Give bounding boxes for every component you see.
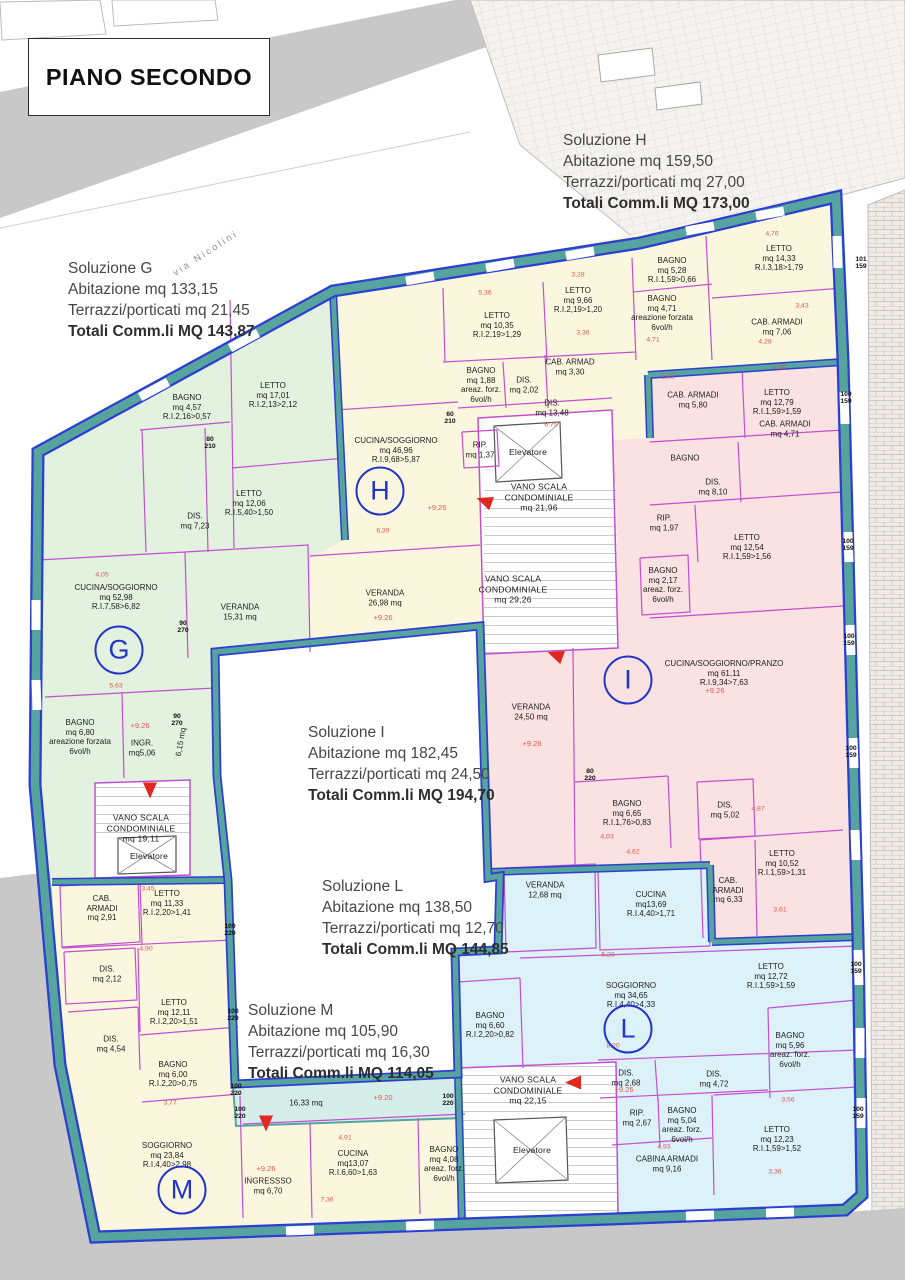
room-label: BAGNOmq 5,96areaz. forz.6vol/h <box>770 1031 810 1069</box>
dimension-label: 4,05 <box>95 572 108 579</box>
room-label: VERANDA26,98 mq <box>366 589 405 608</box>
dimension-label: 3,43 <box>795 303 808 310</box>
room-label: CUCINAmq13,69R.I.4,40>1,71 <box>627 890 675 919</box>
opening-size-label: 100220 <box>230 1083 241 1097</box>
level-marker: +9.26 <box>706 687 725 695</box>
opening-size-label: 90270 <box>177 620 188 634</box>
apartment-badge: I <box>604 656 653 705</box>
room-label: CAB. ARMADImq 4,71 <box>759 420 811 439</box>
floor-plan-page: BAGNOmq 4,57R.I.2,16>0,57LETTOmq 17,01R.… <box>0 0 905 1280</box>
room-label: LETTOmq 11,33R.I.2,20>1,41 <box>143 889 191 918</box>
dimension-label: 3,45 <box>141 886 154 893</box>
room-label: BAGNO <box>671 453 700 463</box>
solution-summary: Soluzione LAbitazione mq 138,50Terrazzi/… <box>322 876 509 960</box>
level-marker: +9.26 <box>428 504 447 512</box>
stair-label: Elevatore <box>509 447 547 458</box>
level-marker: +9.26 <box>257 1165 276 1173</box>
opening-size-label: 101159 <box>855 256 866 270</box>
room-label: LETTOmq 12,72R.I.1,59>1,59 <box>747 962 795 991</box>
room-label: LETTOmq 14,33R.I.3,18>1,79 <box>755 244 803 273</box>
stair-label: Elevatore <box>513 1145 551 1156</box>
dimension-label: 3,61 <box>773 907 786 914</box>
room-label: BAGNOmq 6,60R.I.2,20>0,82 <box>466 1011 514 1040</box>
level-marker: +9.26 <box>615 1086 634 1094</box>
opening-size-label: 100220 <box>224 923 235 937</box>
label-layer: BAGNOmq 4,57R.I.2,16>0,57LETTOmq 17,01R.… <box>0 0 905 1280</box>
dimension-label: 4,62 <box>626 849 639 856</box>
room-label: CAB.ARMADImq 2,91 <box>86 894 117 923</box>
room-label: BAGNOmq 2,17areaz. forz.6vol/h <box>643 566 683 604</box>
plan-title: PIANO SECONDO <box>28 38 270 116</box>
solution-summary: Soluzione MAbitazione mq 105,90Terrazzi/… <box>248 1000 434 1084</box>
room-label: CUCINAmq13,07R.I.6,60>1,63 <box>329 1149 377 1178</box>
dimension-label: 4,16 <box>772 365 785 372</box>
opening-size-label: 80210 <box>204 436 215 450</box>
room-label: BAGNOmq 5,28R.I.1,59>0,66 <box>648 256 696 285</box>
dimension-label: 6,39 <box>376 528 389 535</box>
opening-size-label: 100159 <box>842 538 853 552</box>
room-label: CAB. ARMADImq 5,80 <box>667 391 719 410</box>
apartment-badge: L <box>604 1005 653 1054</box>
room-label: BAGNOmq 1,88areaz. forz.6vol/h <box>461 366 501 404</box>
dimension-label: 5,63 <box>109 683 122 690</box>
room-label: BAGNOmq 4,57R.I.2,16>0,57 <box>163 393 211 422</box>
room-label: RIP.mq 2,67 <box>623 1109 652 1128</box>
stair-label: VANO SCALACONDOMINIALEmq 29,26 <box>479 573 548 605</box>
room-label: CAB.ARMADImq 6,33 <box>712 876 743 905</box>
dimension-label: 3,28 <box>571 272 584 279</box>
plan-title-text: PIANO SECONDO <box>46 64 252 91</box>
entrance-arrow-icon <box>139 778 161 805</box>
apartment-badge: G <box>95 626 144 675</box>
opening-size-label: 100159 <box>850 961 861 975</box>
room-label: DIS.mq 7,23 <box>181 512 210 531</box>
stair-label: Elevatore <box>130 851 168 862</box>
room-label: VERANDA12,68 mq <box>526 881 565 900</box>
room-label: BAGNOmq 6,65R.I.1,76>0,83 <box>603 799 651 828</box>
room-label: CUCINA/SOGGIORNOmq 52,98R.I.7,58>6,82 <box>74 583 157 612</box>
dimension-label: 7,36 <box>320 1197 333 1204</box>
dimension-label: 4,76 <box>765 231 778 238</box>
dimension-label: 3,36 <box>576 330 589 337</box>
stair-label: VANO SCALACONDOMINIALEmq 22,15 <box>494 1074 563 1106</box>
dimension-label: 6,75 <box>544 422 557 429</box>
dimension-label: 4,87 <box>751 806 764 813</box>
dimension-label: 4,03 <box>600 834 613 841</box>
room-label: BAGNOmq 5,04areaz. forz.6vol/h <box>662 1106 702 1144</box>
room-label: CUCINA/SOGGIORNOmq 46,96R.I.9,68>5,87 <box>354 436 437 465</box>
opening-size-label: 90270 <box>171 713 182 727</box>
dimension-label: 4,93 <box>657 1144 670 1151</box>
room-label: BAGNOmq 6,80areazione forzata6vol/h <box>49 718 111 756</box>
solution-summary: Soluzione HAbitazione mq 159,50Terrazzi/… <box>563 130 750 214</box>
opening-size-label: 100159 <box>840 391 851 405</box>
room-label: RIP.mq 1,37 <box>466 441 495 460</box>
opening-size-label: 100159 <box>843 633 854 647</box>
room-label: DIS.mq 4,72 <box>700 1070 729 1089</box>
room-label: CAB. ARMADmq 3,30 <box>545 358 594 377</box>
level-marker: +9.26 <box>374 614 393 622</box>
stair-label: VANO SCALACONDOMINIALEmq 19,11 <box>107 812 176 844</box>
room-label: CAB. ARMADImq 7,06 <box>751 318 803 337</box>
dimension-label: 3,56 <box>781 1097 794 1104</box>
opening-size-label: 100159 <box>845 745 856 759</box>
room-label: LETTOmq 9,66R.I.2,19>1,20 <box>554 286 602 315</box>
dimension-label: 2,63 <box>661 374 674 381</box>
room-label: 16,33 mq <box>289 1098 322 1108</box>
dimension-label: 5,36 <box>478 290 491 297</box>
apartment-badge: M <box>158 1166 207 1215</box>
dimension-label: 4,91 <box>338 1135 351 1142</box>
room-label: RIP.mq 1,97 <box>650 514 679 533</box>
dimension-label: 5,23 <box>601 952 614 959</box>
level-marker: +9.26 <box>131 722 150 730</box>
opening-size-label: 60210 <box>444 411 455 425</box>
opening-size-label: 100220 <box>442 1093 453 1107</box>
room-label: LETTOmq 12,79R.I.1,59>1,59 <box>753 388 801 417</box>
room-label: INGR.mq5,06 <box>129 739 156 758</box>
level-marker: +9.26 <box>523 740 542 748</box>
entrance-arrow-icon <box>255 1111 277 1138</box>
room-label: VERANDA15,31 mq <box>221 603 260 622</box>
entrance-arrow-icon <box>475 491 497 518</box>
room-label: DIS.mq 4,54 <box>97 1035 126 1054</box>
dimension-label: 4,90 <box>139 946 152 953</box>
room-label: DIS.mq 5,02 <box>711 801 740 820</box>
dimension-label: 4,28 <box>758 339 771 346</box>
level-marker: +9.20 <box>374 1094 393 1102</box>
apartment-badge: H <box>356 467 405 516</box>
room-label: LETTOmq 12,23R.I.1,59>1,52 <box>753 1125 801 1154</box>
room-label: BAGNOmq 4,08areaz. forz.6vol/h <box>424 1145 464 1183</box>
room-label: LETTOmq 12,54R.I.1,59>1,56 <box>723 533 771 562</box>
room-label: DIS.mq 8,10 <box>699 478 728 497</box>
room-label: BAGNOmq 4,71areazione forzata6vol/h <box>631 294 693 332</box>
room-label: LETTOmq 10,52R.I.1,59>1,31 <box>758 849 806 878</box>
room-label: DIS.mq 2,12 <box>93 965 122 984</box>
room-label: CABINA ARMADImq 9,16 <box>636 1155 698 1174</box>
entrance-arrow-icon <box>564 1072 586 1099</box>
entrance-arrow-icon <box>546 645 568 672</box>
room-label: LETTOmq 17,01R.I.2,13>2,12 <box>249 381 297 410</box>
room-label: CUCINA/SOGGIORNO/PRANZOmq 61,11R.I.9,34>… <box>665 659 784 688</box>
opening-size-label: 80220 <box>584 768 595 782</box>
opening-size-label: 100220 <box>227 1008 238 1022</box>
dimension-label: 3,36 <box>768 1169 781 1176</box>
room-label: LETTOmq 12,06R.I.5,40>1,50 <box>225 489 273 518</box>
room-label: LETTOmq 10,35R.I.2,19>1,29 <box>473 311 521 340</box>
room-label: DIS.mq 13,48 <box>535 399 568 418</box>
solution-summary: Soluzione IAbitazione mq 182,45Terrazzi/… <box>308 722 495 806</box>
room-label: DIS.mq 2,02 <box>510 376 539 395</box>
room-label: LETTOmq 12,11R.I.2,20>1,51 <box>150 998 198 1027</box>
dimension-label: 3,77 <box>163 1100 176 1107</box>
solution-summary: Soluzione GAbitazione mq 133,15Terrazzi/… <box>68 258 255 342</box>
room-label: 6,15 mq <box>174 727 188 757</box>
dimension-label: 4,71 <box>646 337 659 344</box>
opening-size-label: 100220 <box>234 1106 245 1120</box>
room-label: INGRESSSOmq 6,70 <box>244 1177 292 1196</box>
stair-label: VANO SCALACONDOMINIALEmq 21,96 <box>505 481 574 513</box>
room-label: BAGNOmq 6,00R.I.2,20>0,75 <box>149 1060 197 1089</box>
opening-size-label: 100159 <box>852 1106 863 1120</box>
room-label: VERANDA24,50 mq <box>512 703 551 722</box>
